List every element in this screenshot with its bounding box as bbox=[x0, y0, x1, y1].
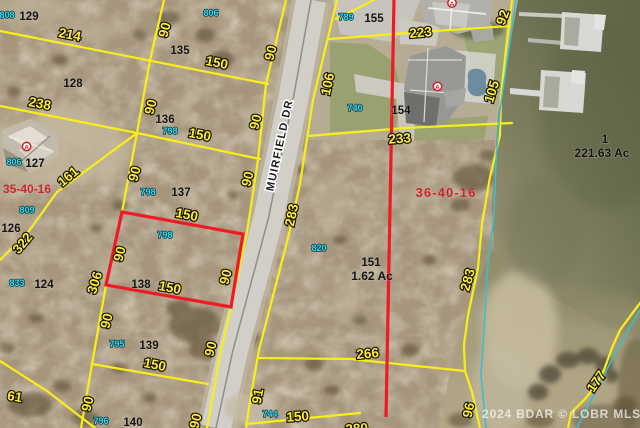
svg-text:35-40-16: 35-40-16 bbox=[3, 182, 51, 196]
svg-text:833: 833 bbox=[9, 278, 24, 288]
svg-text:A: A bbox=[24, 145, 29, 152]
svg-text:137: 137 bbox=[171, 187, 190, 199]
svg-text:126: 126 bbox=[1, 223, 20, 235]
svg-text:2024 BDAR © LOBR MLS: 2024 BDAR © LOBR MLS bbox=[482, 407, 640, 421]
svg-text:91: 91 bbox=[249, 387, 266, 405]
svg-text:233: 233 bbox=[388, 130, 412, 147]
svg-text:806: 806 bbox=[203, 8, 218, 18]
svg-text:140: 140 bbox=[123, 417, 142, 428]
svg-text:806: 806 bbox=[6, 157, 21, 167]
svg-text:127: 127 bbox=[25, 158, 44, 170]
svg-text:1.62 Ac: 1.62 Ac bbox=[351, 269, 393, 283]
svg-text:798: 798 bbox=[157, 230, 172, 240]
svg-text:740: 740 bbox=[347, 103, 362, 113]
svg-text:223: 223 bbox=[409, 24, 433, 41]
svg-text:809: 809 bbox=[19, 205, 34, 215]
svg-text:155: 155 bbox=[364, 13, 384, 25]
svg-text:124: 124 bbox=[34, 279, 54, 291]
svg-text:796: 796 bbox=[93, 416, 108, 426]
svg-text:280: 280 bbox=[345, 420, 369, 428]
svg-text:136: 136 bbox=[155, 114, 174, 126]
svg-text:135: 135 bbox=[170, 45, 190, 57]
svg-text:128: 128 bbox=[63, 78, 83, 90]
svg-text:798: 798 bbox=[162, 126, 177, 136]
svg-text:1: 1 bbox=[602, 134, 609, 146]
svg-text:150: 150 bbox=[286, 408, 310, 425]
svg-text:139: 139 bbox=[139, 340, 158, 352]
svg-text:36-40-16: 36-40-16 bbox=[416, 185, 477, 200]
svg-text:61: 61 bbox=[6, 388, 24, 405]
svg-text:798: 798 bbox=[140, 187, 155, 197]
svg-text:138: 138 bbox=[131, 279, 151, 291]
svg-text:808: 808 bbox=[0, 10, 15, 20]
svg-text:744: 744 bbox=[262, 409, 277, 419]
svg-text:129: 129 bbox=[19, 11, 38, 23]
svg-text:820: 820 bbox=[311, 243, 326, 253]
svg-text:789: 789 bbox=[338, 12, 353, 22]
svg-text:151: 151 bbox=[361, 257, 381, 269]
svg-text:266: 266 bbox=[356, 345, 380, 362]
svg-text:795: 795 bbox=[109, 339, 124, 349]
svg-text:A: A bbox=[450, 1, 455, 8]
svg-text:A: A bbox=[435, 85, 440, 92]
svg-text:154: 154 bbox=[391, 105, 411, 117]
svg-text:221.63 Ac: 221.63 Ac bbox=[575, 146, 630, 160]
